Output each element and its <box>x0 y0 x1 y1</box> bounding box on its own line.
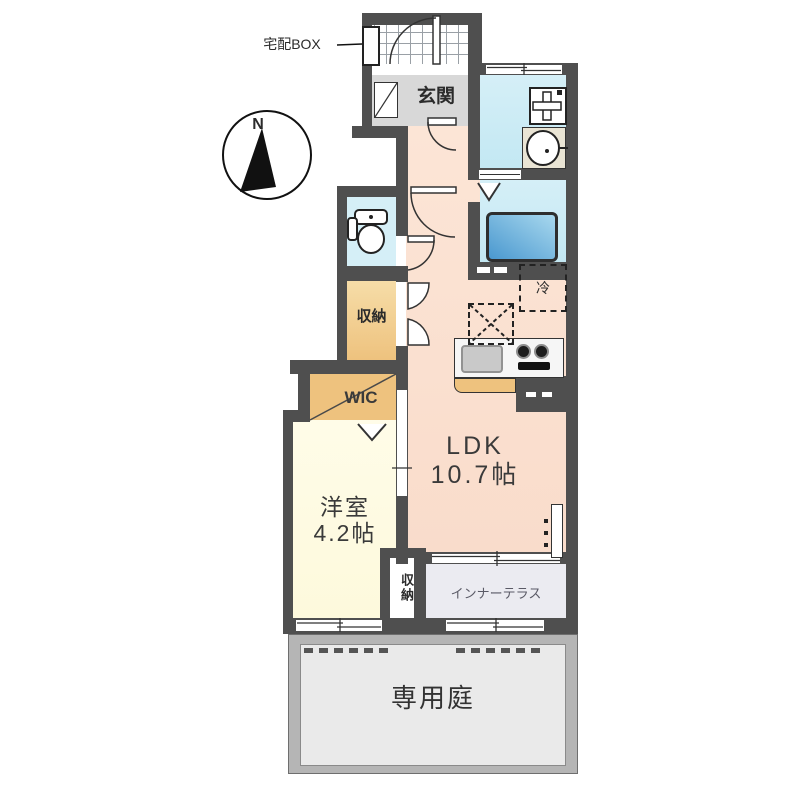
window-ldk-terrace <box>432 554 560 563</box>
delivery-box <box>362 26 380 66</box>
room-ldk-label: LDK 10.7帖 <box>406 432 544 490</box>
stove-burner <box>516 344 531 359</box>
ldk-wall-door <box>551 504 563 558</box>
window-washroom-top <box>486 65 562 74</box>
wall <box>290 360 396 374</box>
wall <box>566 63 578 634</box>
wall <box>380 548 390 624</box>
bath-wall-vent <box>477 267 490 273</box>
window-western-garden <box>296 620 382 631</box>
bathtub <box>486 212 558 262</box>
floor-plan: N <box>0 0 800 800</box>
door-dot <box>544 531 548 535</box>
stove-grill <box>518 362 550 370</box>
garden-hatch-right <box>456 648 546 653</box>
wall <box>396 346 408 374</box>
room-storage-top-label: 収納 <box>347 308 396 325</box>
entry-porch-tiles <box>374 25 468 66</box>
kitchen-cabinet-face <box>454 378 516 393</box>
delivery-box-pointer <box>337 44 362 45</box>
wall <box>298 374 310 414</box>
door-dot <box>544 543 548 547</box>
dashed-x-space <box>468 303 514 345</box>
washing-machine-pan <box>529 87 567 125</box>
room-genkan-label: 玄関 <box>398 86 474 108</box>
wall <box>347 266 396 281</box>
ps-wall-vent <box>526 392 536 397</box>
western-name: 洋室 <box>291 494 399 520</box>
room-western-label: 洋室 4.2帖 <box>291 494 399 547</box>
ps-wall-vent <box>542 392 552 397</box>
room-terrace-label: インナーテラス <box>426 587 566 602</box>
wall <box>396 197 408 236</box>
window-terrace-garden <box>446 620 544 631</box>
bath-wall-vent <box>494 267 507 273</box>
room-wic-label: WIC <box>328 388 394 408</box>
wall <box>362 13 482 25</box>
western-size: 4.2帖 <box>291 520 399 546</box>
garden-label: 専用庭 <box>303 684 563 714</box>
kitchen-sink <box>461 345 503 373</box>
ldk-name: LDK <box>406 432 544 461</box>
wall <box>337 186 408 197</box>
delivery-box-label: 宅配BOX <box>248 36 336 52</box>
door-dot <box>544 519 548 523</box>
compass-n-label: N <box>246 116 270 134</box>
sliding-door-washroom <box>479 170 521 179</box>
stove-burner <box>534 344 549 359</box>
garden-hatch-left <box>304 648 388 653</box>
wall <box>337 186 347 372</box>
wall <box>396 266 408 282</box>
ldk-size: 10.7帖 <box>406 461 544 490</box>
wall <box>468 202 480 262</box>
fridge-label: 冷 <box>519 280 567 296</box>
shoe-cabinet <box>374 82 398 118</box>
room-storage-bottom-label: 収納 <box>391 560 413 616</box>
washbasin-counter <box>522 127 566 169</box>
room-toilet-floor <box>347 197 396 266</box>
entry-step <box>374 64 468 75</box>
